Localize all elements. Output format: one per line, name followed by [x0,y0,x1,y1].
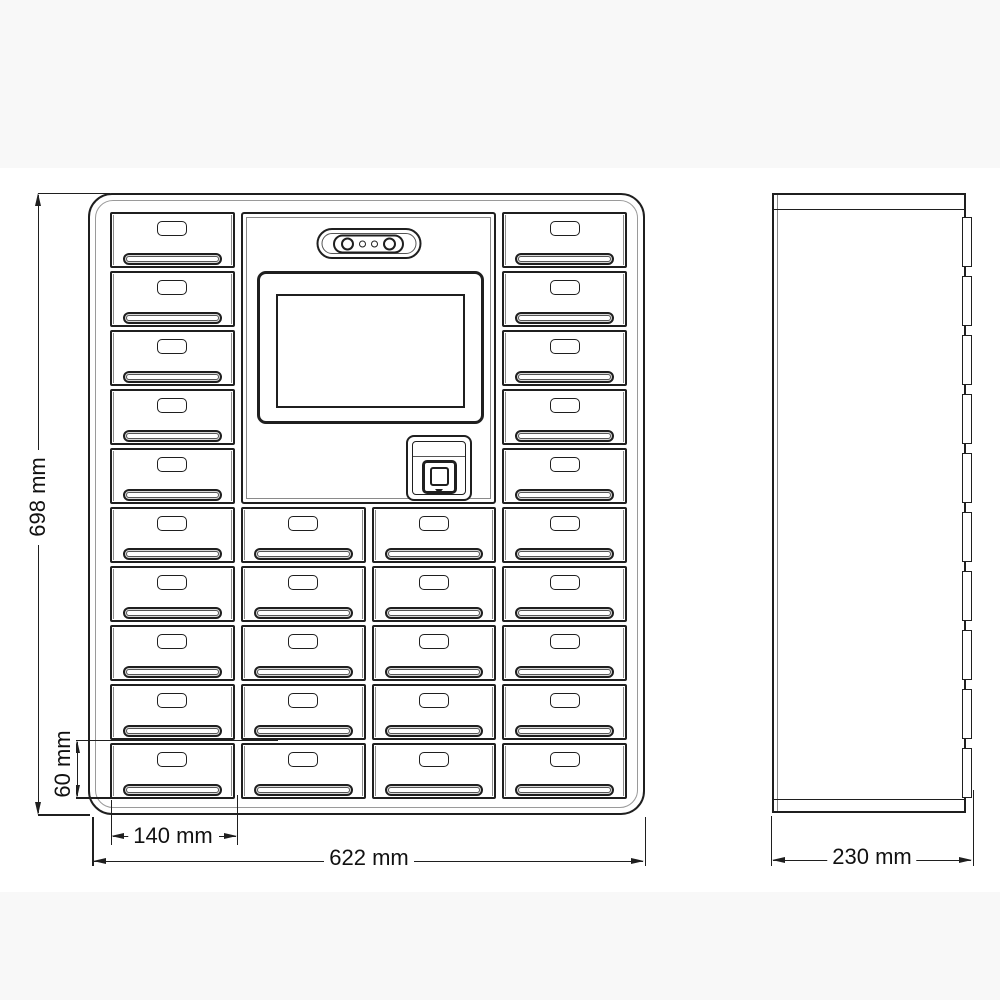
door-lip-inner [126,256,219,262]
compartment-door [372,507,497,563]
dim-arrow [772,857,785,863]
door-edge-tab [962,571,972,621]
door-handle [157,398,187,413]
door-lip-inner [518,315,611,321]
door-lip-inner [518,787,611,793]
door-handle [550,575,580,590]
door-lip [254,725,353,737]
door-handle [550,693,580,708]
door-lip [515,489,614,501]
door-edge-tab [962,689,972,739]
door-lip-inner [257,728,350,734]
door-lip [123,548,222,560]
status-led-icon [371,240,378,247]
door-edge-tab [962,512,972,562]
door-lip-inner [126,374,219,380]
door-lip [123,784,222,796]
door-lip [123,430,222,442]
door-lip [385,666,484,678]
door-lip [385,784,484,796]
compartment-door [110,448,235,504]
compartment-door [241,566,366,622]
dim-extension-line [68,740,278,742]
dim-line [38,545,40,813]
door-handle [419,693,449,708]
compartment-door [241,743,366,799]
door-handle [157,221,187,236]
compartment-door [110,684,235,740]
door-lip [515,371,614,383]
door-lip-inner [518,551,611,557]
door-handle [157,575,187,590]
compartment-door [372,684,497,740]
door-lip-inner [388,669,481,675]
door-handle [288,516,318,531]
dim-extension-line [38,814,90,816]
door-lip-inner [126,551,219,557]
compartment-door [502,625,627,681]
door-lip-inner [518,669,611,675]
compartment-door [372,566,497,622]
compartment-door [502,684,627,740]
compartment-door [241,684,366,740]
door-handle [157,339,187,354]
door-edge-tab [962,276,972,326]
side-view-cabinet [772,193,966,813]
top-background-band [0,0,1000,168]
door-handle [157,457,187,472]
dim-arrow [111,833,124,839]
door-lip [515,430,614,442]
fingerprint-arrow-icon [435,489,443,494]
door-lip [385,725,484,737]
door-handle [419,634,449,649]
fingerprint-scanner-top-bar [413,442,465,457]
door-lip-inner [518,728,611,734]
door-lip-inner [518,610,611,616]
compartment-door [372,625,497,681]
display-screen-bezel [257,271,484,424]
dim-width-label: 622 mm [324,845,413,871]
dim-cell-width-label: 140 mm [128,823,217,849]
indicator-light-bezel [316,228,421,259]
door-lip-inner [518,256,611,262]
door-handle [157,280,187,295]
compartment-door [110,507,235,563]
compartment-door [110,743,235,799]
door-handle [288,752,318,767]
door-edge-tab [962,217,972,267]
dim-depth-label: 230 mm [827,844,916,870]
door-lip [123,725,222,737]
door-lip [123,312,222,324]
door-edge-tab [962,748,972,798]
door-handle [550,339,580,354]
status-led-icon [341,237,354,250]
door-lip-inner [126,610,219,616]
door-lip-inner [126,728,219,734]
compartment-door [502,448,627,504]
compartment-door [502,271,627,327]
dim-height-label: 698 mm [25,452,51,541]
dim-extension-line [38,193,110,195]
door-lip [515,253,614,265]
dim-line [94,861,324,863]
door-lip [123,607,222,619]
door-handle [550,221,580,236]
door-handle [157,634,187,649]
door-lip-inner [518,374,611,380]
fingerprint-scanner [406,435,472,501]
compartment-door [502,389,627,445]
door-lip [123,371,222,383]
door-lip-inner [518,433,611,439]
door-lip-inner [388,551,481,557]
compartment-door [241,507,366,563]
door-lip-inner [126,433,219,439]
door-handle [419,752,449,767]
compartment-door [502,743,627,799]
dim-arrow [35,802,41,815]
compartment-door [372,743,497,799]
front-view-cabinet [88,193,645,815]
door-lip-inner [518,492,611,498]
compartment-door [110,271,235,327]
compartment-door [502,212,627,268]
bottom-background-band [0,892,1000,1000]
door-lip [515,725,614,737]
door-handle [157,693,187,708]
display-screen [276,294,465,408]
door-lip-inner [257,610,350,616]
door-lip [515,607,614,619]
status-led-icon [359,240,366,247]
door-lip-inner [257,669,350,675]
door-lip-inner [388,787,481,793]
door-lip [515,312,614,324]
door-lip [254,666,353,678]
door-lip [123,489,222,501]
fingerprint-sensor [430,467,449,486]
door-handle [550,634,580,649]
side-view-bottom-cap [774,799,964,811]
door-lip [385,548,484,560]
dim-extension-line [973,790,975,866]
side-view-top-cap [774,195,964,210]
compartment-door [502,507,627,563]
door-edge-tab [962,394,972,444]
dim-arrow [224,833,237,839]
compartment-door [502,566,627,622]
door-handle [288,575,318,590]
door-lip [123,666,222,678]
door-handle [419,575,449,590]
compartment-door [110,330,235,386]
dim-arrow [631,858,644,864]
door-handle [157,752,187,767]
door-lip [385,607,484,619]
door-lip-inner [126,669,219,675]
door-handle [550,398,580,413]
door-handle [157,516,187,531]
door-lip [254,784,353,796]
door-lip [515,784,614,796]
fingerprint-scanner-frame [412,441,466,495]
door-lip-inner [126,315,219,321]
door-lip-inner [126,492,219,498]
dim-arrow [959,857,972,863]
compartment-door [502,330,627,386]
door-edge-tab [962,453,972,503]
door-lip [515,548,614,560]
door-lip-inner [257,551,350,557]
compartment-door [110,625,235,681]
control-panel [241,212,497,504]
door-lip-inner [126,787,219,793]
indicator-led-strip [333,234,404,253]
door-lip-inner [257,787,350,793]
door-lip [515,666,614,678]
door-lip-inner [388,728,481,734]
compartment-door [110,389,235,445]
door-handle [550,457,580,472]
door-handle [550,516,580,531]
door-edge-tab [962,630,972,680]
compartment-door [241,625,366,681]
compartment-door [110,212,235,268]
door-handle [288,693,318,708]
compartment-door [110,566,235,622]
dim-arrow [35,193,41,206]
door-handle [288,634,318,649]
door-lip [254,607,353,619]
status-led-icon [383,237,396,250]
door-handle [550,280,580,295]
dim-extension-line [645,817,647,866]
door-lip [254,548,353,560]
dim-cell-height-label: 60 mm [50,725,76,802]
door-lip-inner [388,610,481,616]
door-handle [419,516,449,531]
dim-line [414,861,643,863]
dim-line [38,195,40,450]
door-lip [123,253,222,265]
fingerprint-window [422,460,457,494]
door-edge-tab [962,335,972,385]
door-handle [550,752,580,767]
dim-arrow [93,858,106,864]
